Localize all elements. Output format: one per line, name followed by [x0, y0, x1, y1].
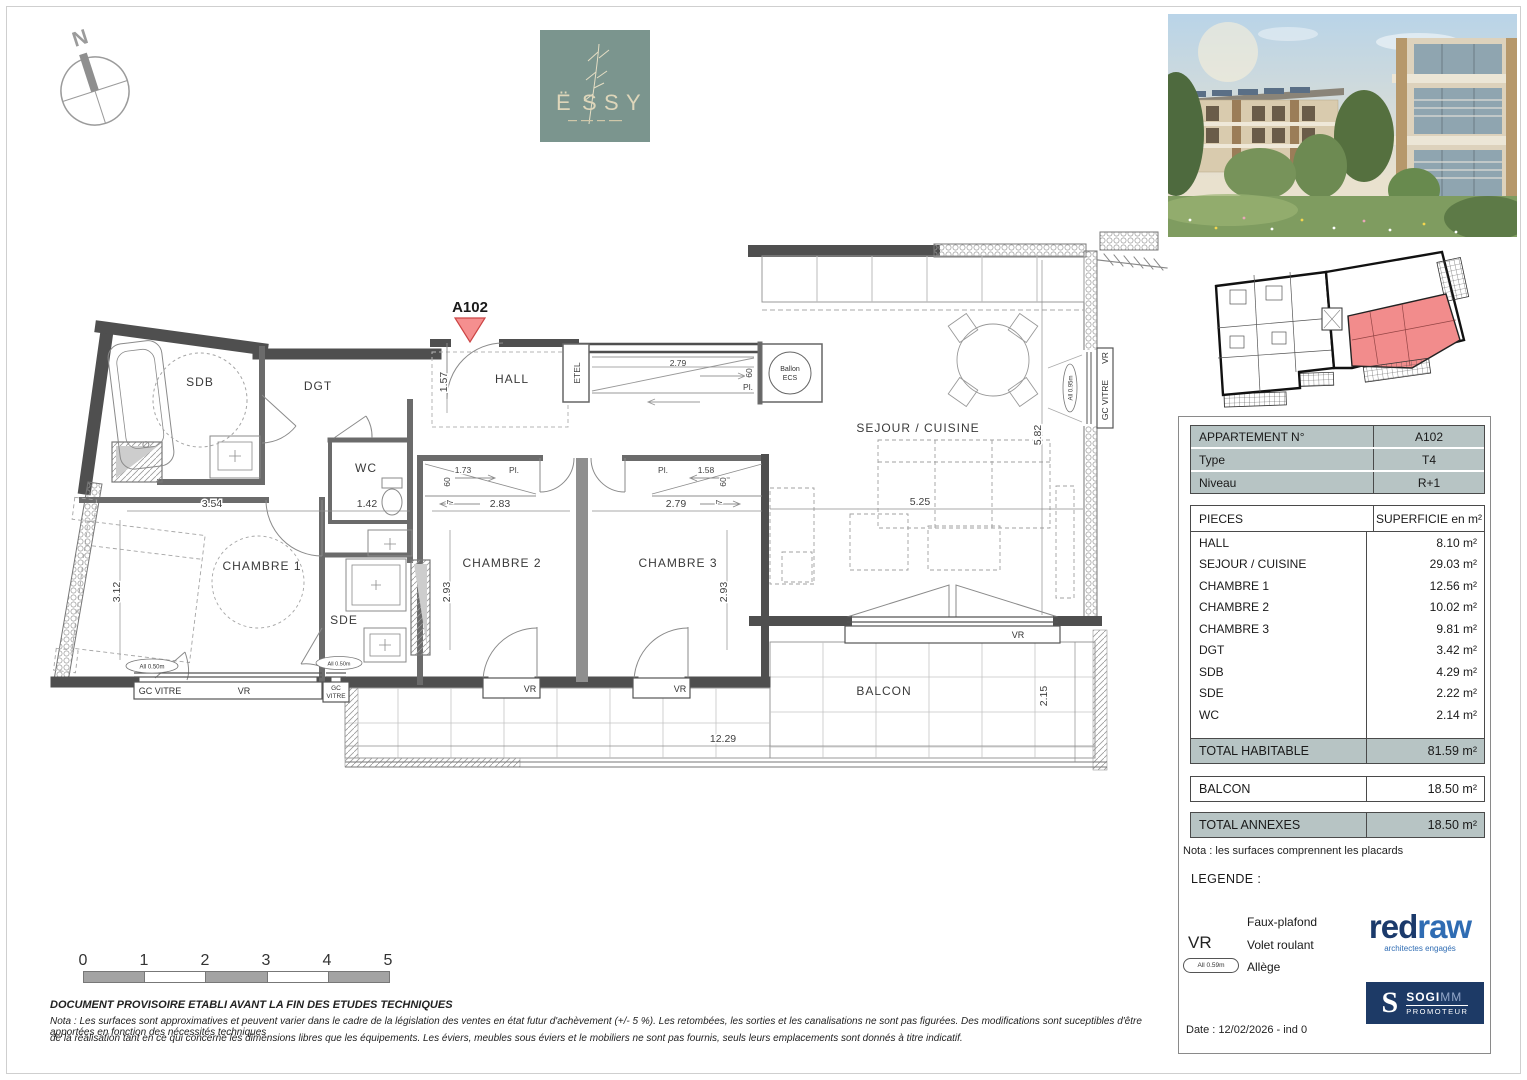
- floor-plan: ETEL 2.79 60 Pl. Ballon ECS: [0, 230, 1170, 810]
- compass-north-label: N: [69, 25, 91, 52]
- balcon-value: 18.50 m²: [1366, 777, 1484, 801]
- essy-logo: Ë S S Y: [540, 30, 650, 142]
- legend-faux-plafond: Faux-plafond: [1247, 915, 1317, 929]
- dim-ch2w: 2.83: [490, 498, 511, 510]
- redraw-word-light: raw: [1417, 908, 1471, 945]
- vr-label3: VR: [674, 684, 687, 694]
- dining-set: [948, 313, 1037, 406]
- unit-marker: A102: [452, 299, 488, 342]
- dim-closet3: 1.58: [698, 465, 715, 475]
- table-row: SDE2.22 m²: [1191, 683, 1484, 705]
- surfaces-table: PIECES SUPERFICIE en m² HALL8.10 m² SEJO…: [1190, 505, 1485, 743]
- table-row: APPARTEMENT N° A102: [1191, 426, 1484, 449]
- exterior-walls: [54, 232, 1167, 682]
- placards-note: Nota : les surfaces comprennent les plac…: [1183, 845, 1403, 857]
- room-label-sejour: SEJOUR / CUISINE: [856, 421, 979, 435]
- ballon-ecs: Ballon ECS: [769, 352, 811, 394]
- sogimm-subtitle: PROMOTEUR: [1406, 1005, 1468, 1016]
- dim-wc: 1.42: [357, 498, 378, 510]
- info-label: Type: [1191, 449, 1373, 470]
- gc-vitre-vert: GC VITRE: [1100, 380, 1110, 420]
- sogimm-name-light: MM: [1440, 990, 1462, 1004]
- dim-sejw: 5.25: [910, 496, 931, 508]
- sogimm-initial: S: [1382, 986, 1399, 1020]
- room-label-dgt: DGT: [304, 379, 332, 393]
- redraw-word-dark: red: [1369, 908, 1417, 945]
- redraw-tagline: architectes engagés: [1356, 944, 1484, 953]
- dim-balh: 2.15: [1038, 686, 1050, 707]
- date-line: Date : 12/02/2026 - ind 0: [1186, 1024, 1307, 1036]
- balcony-tiles: [345, 630, 1107, 770]
- table-row: CHAMBRE 210.02 m²: [1191, 597, 1484, 619]
- room-label-wc: WC: [355, 461, 377, 475]
- table-row: WC2.14 m²: [1191, 704, 1484, 726]
- info-label: APPARTEMENT N°: [1191, 426, 1373, 447]
- info-value: A102: [1373, 426, 1484, 447]
- room-label-sde: SDE: [330, 613, 358, 627]
- table-row: DGT3.42 m²: [1191, 640, 1484, 662]
- faux-plafond-zone: [432, 352, 568, 427]
- apartment-info-table: APPARTEMENT N° A102 Type T4 Niveau R+1: [1190, 425, 1485, 494]
- sogimm-name: SOGI: [1406, 990, 1440, 1004]
- table-header: PIECES SUPERFICIE en m²: [1191, 506, 1484, 532]
- room-label-sdb: SDB: [186, 375, 214, 389]
- vitre-label: VITRE: [326, 693, 346, 700]
- scale-bar: 0 1 2 3 4 5: [83, 952, 388, 982]
- dim-hall: 1.57: [438, 372, 450, 393]
- scale-5: 5: [378, 952, 398, 970]
- scale-1: 1: [134, 952, 154, 970]
- legal-note-line2: de la réalisation tant en ce qui concern…: [50, 1033, 1155, 1044]
- unit-marker-label: A102: [452, 299, 488, 316]
- sogimm-logo: S SOGIMM PROMOTEUR: [1366, 982, 1484, 1024]
- ducts: [112, 442, 430, 655]
- kitchen-counter: [762, 256, 1084, 310]
- table-row: CHAMBRE 112.56 m²: [1191, 575, 1484, 597]
- pl-label2: Pl.: [509, 465, 519, 475]
- shower-room-fixtures: [346, 559, 406, 662]
- svg-text:Ballon: Ballon: [780, 366, 800, 373]
- legend-allege: Allège: [1247, 960, 1280, 974]
- essy-logo-art: Ë S S Y: [540, 30, 650, 142]
- gc-vitre-label: GC VITRE: [139, 686, 182, 696]
- dim-closet2: 1.73: [455, 465, 472, 475]
- wc-fixtures: [368, 478, 412, 556]
- dim-7: 7: [445, 499, 455, 504]
- table-row: Type T4: [1191, 449, 1484, 472]
- scale-2: 2: [195, 952, 215, 970]
- scale-4: 4: [317, 952, 337, 970]
- redraw-logo: redraw architectes engagés: [1356, 912, 1484, 953]
- allege-tags: All 0.50m All 0.50m All 0.95m: [126, 355, 1082, 673]
- floorplan-sheet: { "compass": {"label": "N"}, "brand": {"…: [0, 0, 1527, 1080]
- unit-marker-arrow-icon: [455, 318, 485, 342]
- info-value: R+1: [1373, 472, 1484, 493]
- legend-vr-symbol: VR: [1188, 933, 1212, 953]
- etel-label: ETEL: [572, 362, 582, 384]
- total-habitable-bar: TOTAL HABITABLE 81.59 m²: [1190, 738, 1485, 764]
- building-render-image: [1168, 14, 1517, 237]
- north-compass-icon: N: [48, 25, 143, 140]
- dim-ch3w: 2.79: [666, 498, 687, 510]
- svg-text:All 0.50m: All 0.50m: [328, 662, 351, 668]
- dim-corridor: 2.79: [670, 358, 687, 368]
- dim-ch1w: 3.54: [202, 498, 223, 510]
- balcon-label: BALCON: [1191, 777, 1366, 801]
- pl-label: Pl.: [743, 382, 753, 392]
- dim-ch3h: 2.93: [718, 582, 730, 603]
- total-annexes-bar: TOTAL ANNEXES 18.50 m²: [1190, 812, 1485, 838]
- key-plan: [1202, 246, 1487, 414]
- scale-3: 3: [256, 952, 276, 970]
- legend-title: LEGENDE :: [1191, 872, 1261, 886]
- table-row: SEJOUR / CUISINE29.03 m²: [1191, 554, 1484, 576]
- room-label-chambre1: CHAMBRE 1: [222, 559, 301, 573]
- gc-label: GC: [331, 685, 341, 692]
- vr-vert: VR: [1100, 352, 1110, 364]
- table-row: Niveau R+1: [1191, 472, 1484, 493]
- vr-label2: VR: [524, 684, 537, 694]
- dim-sejh: 5.82: [1032, 425, 1044, 446]
- info-label: Niveau: [1191, 472, 1373, 493]
- table-row: SDB4.29 m²: [1191, 661, 1484, 683]
- svg-text:ECS: ECS: [783, 375, 798, 382]
- total-habitable-value: 81.59 m²: [1366, 739, 1484, 763]
- total-annexes-value: 18.50 m²: [1366, 813, 1484, 837]
- brand-tagline-marks: [568, 120, 622, 121]
- scale-bar-segments: [83, 971, 390, 983]
- dim-ch1h: 3.12: [111, 582, 123, 603]
- col-header-pieces: PIECES: [1191, 506, 1373, 531]
- dim-60c: 60: [718, 477, 728, 487]
- room-label-balcon: BALCON: [856, 684, 911, 698]
- legend-allege-symbol: All 0.59m: [1183, 958, 1239, 973]
- living-furniture: [770, 440, 1074, 598]
- vr-label1: VR: [238, 686, 251, 696]
- info-value: T4: [1373, 449, 1484, 470]
- svg-text:All 0.95m: All 0.95m: [1069, 375, 1075, 400]
- dim-ch2h: 2.93: [441, 582, 453, 603]
- dim-60: 60: [744, 368, 754, 378]
- balcon-bar: BALCON 18.50 m²: [1190, 776, 1485, 802]
- col-header-superficie: SUPERFICIE en m²: [1373, 506, 1484, 531]
- svg-text:All 0.50m: All 0.50m: [139, 665, 164, 671]
- provisional-document-note: DOCUMENT PROVISOIRE ETABLI AVANT LA FIN …: [50, 999, 453, 1011]
- total-annexes-label: TOTAL ANNEXES: [1191, 813, 1366, 837]
- dim-balw: 12.29: [710, 733, 736, 745]
- legend-volet-roulant: Volet roulant: [1247, 938, 1314, 952]
- room-label-chambre2: CHAMBRE 2: [462, 556, 541, 570]
- room-label-chambre3: CHAMBRE 3: [638, 556, 717, 570]
- total-habitable-label: TOTAL HABITABLE: [1191, 739, 1366, 763]
- dim-60b: 60: [442, 477, 452, 487]
- table-row: CHAMBRE 39.81 m²: [1191, 618, 1484, 640]
- pl-label3: Pl.: [658, 465, 668, 475]
- vr-label4: VR: [1012, 630, 1025, 640]
- dim-7b: 7: [714, 499, 724, 504]
- brand-wordmark: Ë S S Y: [556, 90, 641, 115]
- room-label-hall: HALL: [495, 372, 529, 386]
- table-row: HALL8.10 m²: [1191, 532, 1484, 554]
- interior-walls: [82, 344, 822, 682]
- scale-0: 0: [73, 952, 93, 970]
